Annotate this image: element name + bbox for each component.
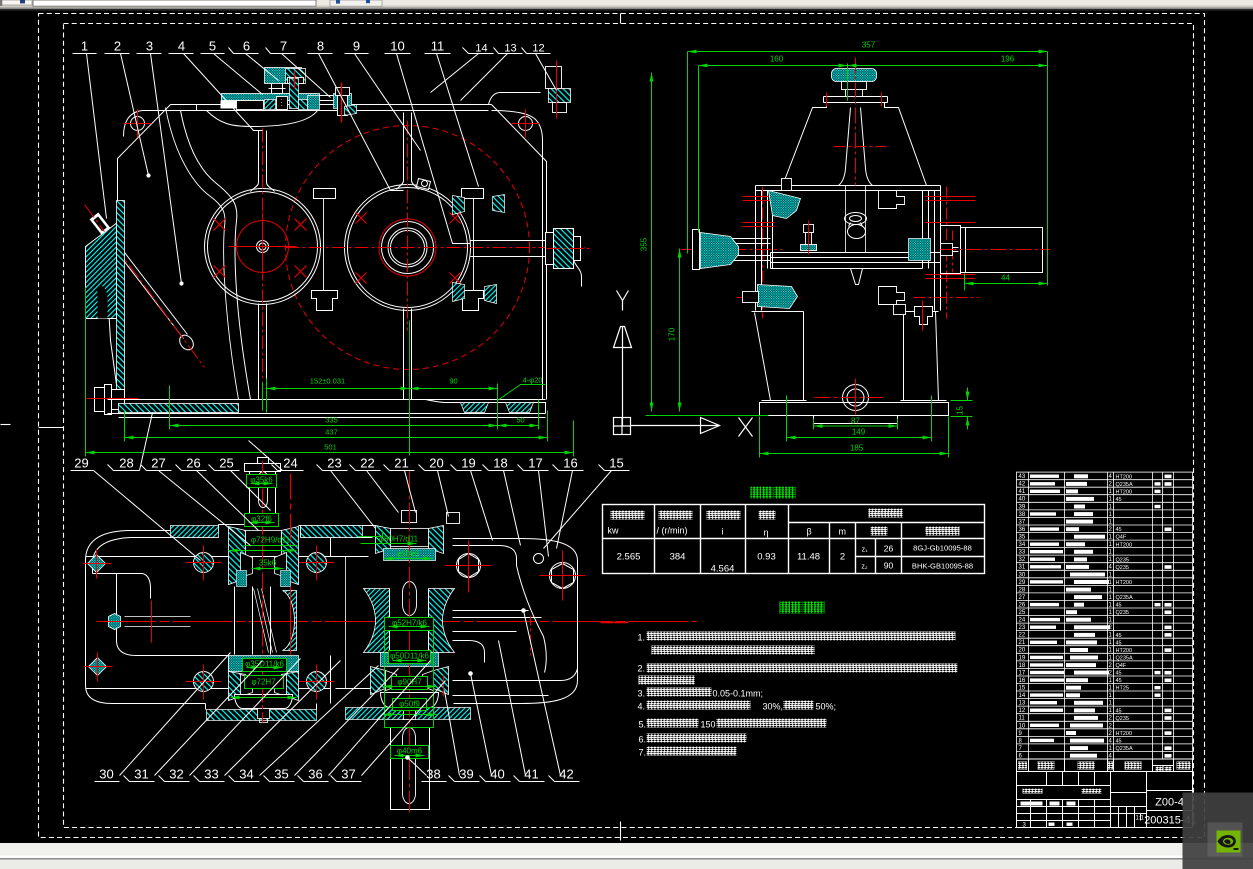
svg-text:Q235: Q235 [1116,557,1129,563]
svg-text:16: 16 [1019,678,1026,684]
svg-text:2.: 2. [638,664,646,674]
svg-text:34: 34 [1019,542,1026,548]
svg-text:42: 42 [1019,482,1026,488]
svg-text:32: 32 [1019,557,1026,563]
svg-text:37: 37 [341,767,355,782]
svg-text:38: 38 [426,767,440,782]
svg-text:26: 26 [1019,603,1026,609]
svg-text:29: 29 [1019,580,1026,586]
svg-text:14: 14 [475,43,487,55]
svg-text:m: m [839,527,847,537]
svg-text:39: 39 [1019,504,1026,510]
svg-text:φ90H7: φ90H7 [397,678,422,687]
svg-text:335: 335 [325,416,338,425]
svg-text:90: 90 [884,561,894,571]
svg-text:15: 15 [1019,686,1026,692]
svg-text:φ40m6: φ40m6 [397,747,423,756]
svg-text:1.: 1. [638,633,646,643]
svg-text:Q235: Q235 [1116,716,1129,722]
svg-text:7: 7 [280,39,287,54]
svg-text:Q4F: Q4F [1116,535,1127,541]
svg-text:β: β [807,527,812,537]
svg-text:HT200: HT200 [1116,580,1133,586]
svg-text:18: 18 [493,456,507,471]
svg-text:33: 33 [1019,550,1026,556]
svg-text:24: 24 [283,456,297,471]
svg-text:10: 10 [390,39,404,54]
svg-text:6: 6 [243,39,250,54]
svg-text:23: 23 [327,456,341,471]
svg-text:Q235A: Q235A [1116,656,1133,662]
svg-text:150: 150 [701,720,716,730]
svg-text:φ72H7: φ72H7 [251,678,276,687]
svg-text:185: 185 [850,444,864,453]
svg-text:HT200: HT200 [1116,489,1133,495]
svg-text:26: 26 [186,456,200,471]
svg-text:19: 19 [1019,655,1026,661]
svg-text:44: 44 [1001,274,1010,283]
svg-text:30%,: 30%, [763,702,784,712]
svg-text:φ80H7/d11: φ80H7/d11 [379,535,419,544]
svg-text:22: 22 [360,456,374,471]
svg-text:11: 11 [1019,716,1026,722]
svg-text:φ32f6: φ32f6 [251,515,272,524]
svg-text:φ52H7/k6: φ52H7/k6 [392,619,428,628]
svg-text:6.: 6. [639,735,647,745]
svg-text:5.: 5. [639,720,647,730]
svg-text:Z00-4: Z00-4 [1155,797,1184,809]
svg-text:437: 437 [325,428,338,437]
svg-text:Q235: Q235 [1116,610,1129,616]
svg-text:12: 12 [1019,708,1026,714]
svg-text:45: 45 [1116,640,1122,646]
svg-text:38: 38 [1019,512,1026,518]
svg-text:50: 50 [516,416,524,425]
svg-text:36: 36 [1019,527,1026,533]
svg-text:HT200: HT200 [1116,648,1133,654]
svg-text:20: 20 [429,456,443,471]
svg-text:21: 21 [1019,640,1026,646]
svg-text:170: 170 [668,327,677,341]
svg-text:4: 4 [178,39,185,54]
svg-text:3: 3 [146,39,153,54]
svg-text:149: 149 [852,428,866,437]
svg-text:24: 24 [1019,618,1026,624]
svg-text:8: 8 [317,39,324,54]
svg-text:20: 20 [1019,648,1026,654]
svg-text:160: 160 [770,55,784,64]
svg-text:17: 17 [528,456,542,471]
svg-text:45: 45 [1116,708,1122,714]
svg-text:Q235A: Q235A [1116,595,1133,601]
svg-text:0.93: 0.93 [757,552,776,563]
svg-text:357: 357 [862,41,876,50]
svg-text:25: 25 [1019,610,1026,616]
svg-text:43: 43 [1019,474,1026,480]
svg-text:32: 32 [169,767,183,782]
svg-text:15: 15 [956,406,965,415]
svg-text:41: 41 [1019,489,1026,495]
svg-text:501: 501 [324,443,337,452]
svg-text:87: 87 [851,417,860,426]
svg-text:33: 33 [204,767,218,782]
svg-text:45: 45 [1116,739,1122,745]
svg-text:39: 39 [459,767,473,782]
svg-text:Q4F: Q4F [1116,663,1127,669]
svg-text:11: 11 [431,39,445,54]
svg-text:42: 42 [559,767,573,782]
svg-text:37: 37 [1019,519,1026,525]
svg-text:31: 31 [134,767,148,782]
svg-text:φ72H9/d11: φ72H9/d11 [251,536,291,545]
svg-text:4.564: 4.564 [711,564,735,575]
svg-text:196: 196 [1001,55,1015,64]
svg-text:kw: kw [608,526,620,536]
svg-text:5: 5 [209,39,216,54]
svg-text:7.: 7. [639,748,647,758]
svg-text:i: i [722,527,724,537]
svg-text:φ50f9: φ50f9 [399,700,420,709]
svg-text:0.05-0.1mm;: 0.05-0.1mm; [713,689,764,699]
svg-text:13: 13 [504,43,516,55]
svg-text:17: 17 [1019,670,1026,676]
svg-text:16: 16 [563,456,577,471]
svg-text:13: 13 [1019,701,1026,707]
svg-text:HT25: HT25 [1116,686,1129,692]
svg-text:35: 35 [274,767,288,782]
svg-text:4-φ20: 4-φ20 [523,376,543,385]
svg-text:35k6: 35k6 [259,559,277,568]
svg-text:19: 19 [461,456,475,471]
svg-text:φ35k6: φ35k6 [250,476,273,485]
svg-text:26: 26 [884,544,894,554]
svg-text:9: 9 [353,39,360,54]
svg-text:34: 34 [239,767,253,782]
svg-text:25: 25 [219,456,233,471]
svg-text:27: 27 [1019,595,1026,601]
svg-text:HT200: HT200 [1116,474,1133,480]
svg-text:η: η [764,528,769,538]
svg-text:152±0.031: 152±0.031 [310,377,345,386]
svg-text:/ (r/min): / (r/min) [657,526,688,536]
svg-text:90: 90 [449,377,457,386]
svg-text:45: 45 [1116,633,1122,639]
svg-text:z₁: z₁ [862,547,869,554]
svg-text:45: 45 [1116,527,1122,533]
svg-text:14: 14 [1019,693,1026,699]
svg-text:3.: 3. [638,689,646,699]
svg-text:45: 45 [1116,497,1122,503]
svg-text:40: 40 [1019,497,1026,503]
svg-text:28: 28 [1019,587,1026,593]
svg-text:10: 10 [1019,723,1026,729]
svg-text:Q235A: Q235A [1116,746,1133,752]
svg-text:30: 30 [1019,572,1026,578]
svg-text:2.565: 2.565 [617,552,641,563]
svg-text:29: 29 [74,456,88,471]
svg-text:BHK-GB10095-88: BHK-GB10095-88 [912,562,973,571]
svg-text:11.48: 11.48 [797,552,820,563]
svg-text:41: 41 [524,767,538,782]
svg-text:z₂: z₂ [861,564,868,571]
svg-text:27: 27 [151,456,165,471]
svg-text:15: 15 [609,456,623,471]
svg-text:45: 45 [1116,678,1122,684]
svg-text:4.: 4. [638,702,646,712]
svg-text:355: 355 [640,237,649,251]
svg-text:21: 21 [394,456,408,471]
svg-text:31: 31 [1019,565,1026,571]
svg-text:12: 12 [532,43,544,55]
svg-text:2: 2 [840,552,845,563]
svg-text:35: 35 [1019,535,1026,541]
svg-text:22: 22 [1019,633,1026,639]
svg-text:40: 40 [490,767,504,782]
svg-text:28: 28 [119,456,133,471]
svg-text:18: 18 [1019,663,1026,669]
svg-text:23: 23 [1019,625,1026,631]
svg-text:45: 45 [1116,603,1122,609]
svg-text:HT200: HT200 [1116,542,1133,548]
svg-text:50%;: 50%; [816,702,837,712]
svg-text:36: 36 [308,767,322,782]
svg-text:φ50k6: φ50k6 [396,550,419,559]
svg-text:45: 45 [1116,671,1122,677]
svg-text:8GJ-Gb10095-88: 8GJ-Gb10095-88 [913,544,972,553]
svg-text:1:1: 1:1 [1136,816,1145,822]
svg-text:384: 384 [670,552,686,563]
svg-text:Q235: Q235 [1116,565,1129,571]
svg-text:2: 2 [114,39,121,54]
svg-text:Q235A: Q235A [1116,482,1133,488]
svg-text:φ35D11/k6: φ35D11/k6 [245,660,284,669]
svg-text:30: 30 [99,767,113,782]
svg-text:HT200: HT200 [1116,731,1133,737]
svg-text:1: 1 [81,39,88,54]
svg-text:φ50D11/k6: φ50D11/k6 [390,652,429,661]
